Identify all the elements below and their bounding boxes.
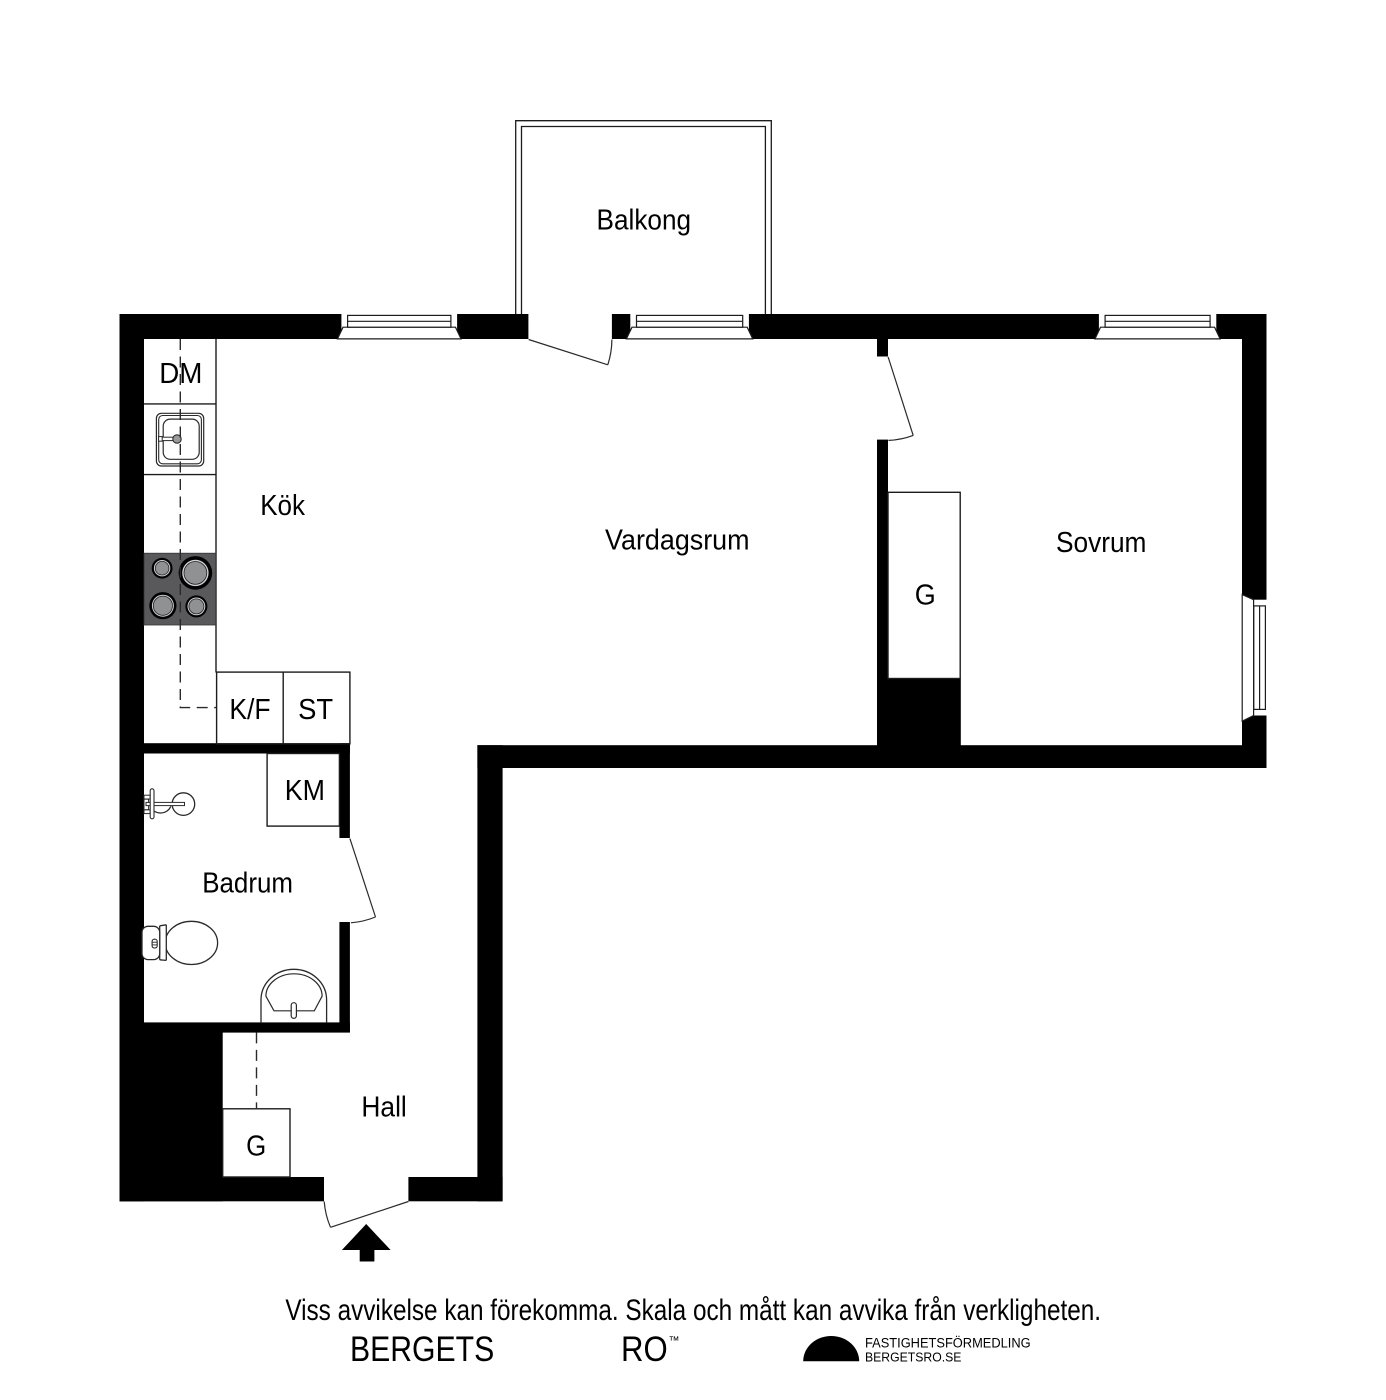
svg-text:BERGETS: BERGETS <box>350 1330 494 1369</box>
svg-text:K/F: K/F <box>229 694 270 726</box>
svg-text:G: G <box>246 1131 266 1163</box>
svg-text:Sovrum: Sovrum <box>1056 527 1147 559</box>
svg-text:BERGETSRO.SE: BERGETSRO.SE <box>865 1349 962 1364</box>
svg-text:FASTIGHETSFÖRMEDLING: FASTIGHETSFÖRMEDLING <box>865 1335 1031 1350</box>
svg-text:Viss avvikelse kan förekomma.: Viss avvikelse kan förekomma. Skala och … <box>285 1294 1101 1327</box>
svg-text:Badrum: Badrum <box>202 868 293 900</box>
svg-text:™: ™ <box>669 1335 680 1347</box>
svg-text:Kök: Kök <box>260 490 305 522</box>
svg-text:ST: ST <box>298 694 333 726</box>
svg-text:G: G <box>915 580 936 612</box>
svg-text:Vardagsrum: Vardagsrum <box>605 525 750 557</box>
svg-text:RO: RO <box>621 1330 668 1369</box>
svg-text:DM: DM <box>159 358 202 390</box>
svg-text:Balkong: Balkong <box>597 205 692 237</box>
svg-text:KM: KM <box>285 775 325 807</box>
svg-text:Hall: Hall <box>361 1092 406 1124</box>
